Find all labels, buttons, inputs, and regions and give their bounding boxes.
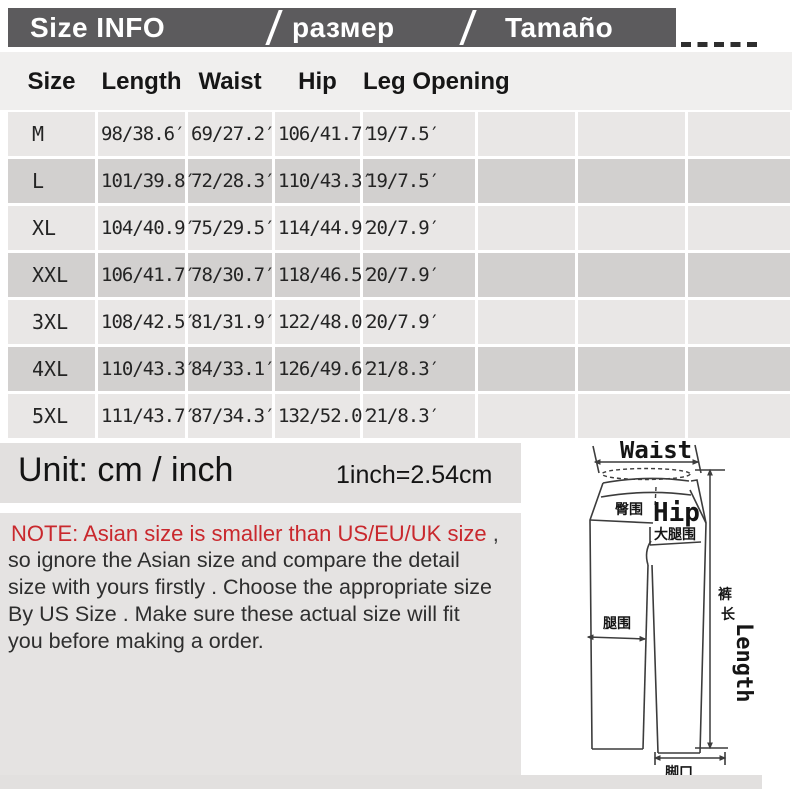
waist-cell: 78/30.7′ — [188, 253, 272, 297]
title-tamano: Tamaño — [505, 12, 613, 44]
waistband-top — [603, 478, 689, 483]
length-cn-label-1: 裤 — [718, 586, 732, 603]
waist-cell: 75/29.5′ — [188, 206, 272, 250]
table-row-m: M 98/38.6′ 69/27.2′ 106/41.7′ 19/7.5′ — [8, 112, 790, 156]
leg-circumference-arrow — [588, 637, 645, 639]
note-line: size with yours firstly . Choose the app… — [8, 574, 521, 601]
length-cell: 110/43.3′ — [98, 347, 185, 391]
pants-left-inner — [643, 565, 648, 749]
waist-cell: 72/28.3′ — [188, 159, 272, 203]
empty-cell — [478, 300, 575, 344]
empty-cell — [478, 159, 575, 203]
unit-band: Unit: cm / inch 1inch=2.54cm — [0, 443, 521, 503]
empty-cell — [578, 253, 685, 297]
inch-conversion: 1inch=2.54cm — [336, 461, 492, 490]
size-cell: XXL — [8, 253, 95, 297]
empty-cell — [478, 394, 575, 438]
length-label: Length — [731, 623, 756, 702]
empty-cell — [688, 394, 790, 438]
empty-cell — [478, 206, 575, 250]
hip-cn-label: 臀围 — [615, 502, 643, 518]
leg-opening-cell: 20/7.9′ — [363, 300, 475, 344]
note-panel: NOTE: Asian size is smaller than US/EU/U… — [0, 513, 521, 775]
thigh-cn-label: 大腿围 — [654, 526, 696, 543]
leg-opening-cell: 20/7.9′ — [363, 206, 475, 250]
empty-cell — [688, 159, 790, 203]
pants-diagram-svg: Waist 臀围 Hip 大腿围 腿围 脚口 裤 长 Length — [525, 441, 789, 775]
waist-tick-left — [593, 446, 599, 473]
size-cell: XL — [8, 206, 95, 250]
hip-cell: 110/43.3′ — [275, 159, 360, 203]
col-header-hip: Hip — [275, 68, 360, 96]
waist-label: Waist — [620, 441, 692, 464]
size-table-header: Size Length Waist Hip Leg Opening — [0, 52, 792, 110]
empty-cell — [578, 394, 685, 438]
leg-opening-cell: 19/7.5′ — [363, 159, 475, 203]
length-cell: 106/41.7′ — [98, 253, 185, 297]
table-row-5xl: 5XL 111/43.7′ 87/34.3′ 132/52.0′ 21/8.3′ — [8, 394, 790, 438]
empty-cell — [478, 112, 575, 156]
empty-cell — [578, 206, 685, 250]
hip-cell: 106/41.7′ — [275, 112, 360, 156]
length-cell: 98/38.6′ — [98, 112, 185, 156]
length-cell: 111/43.7′ — [98, 394, 185, 438]
title-razmer: размер — [292, 12, 395, 44]
length-cell: 104/40.9′ — [98, 206, 185, 250]
col-header-empty — [688, 68, 790, 96]
size-cell: M — [8, 112, 95, 156]
length-cell: 101/39.8′ — [98, 159, 185, 203]
leg-opening-cn-label: 脚口 — [665, 765, 693, 775]
empty-cell — [478, 253, 575, 297]
hip-cell: 118/46.5′ — [275, 253, 360, 297]
empty-cell — [478, 347, 575, 391]
table-row-l: L 101/39.8′ 72/28.3′ 110/43.3′ 19/7.5′ — [8, 159, 790, 203]
empty-cell — [688, 347, 790, 391]
table-row-4xl: 4XL 110/43.3′ 84/33.1′ 126/49.6′ 21/8.3′ — [8, 347, 790, 391]
table-row-3xl: 3XL 108/42.5′ 81/31.9′ 122/48.0′ 20/7.9′ — [8, 300, 790, 344]
note-headline-comma: , — [487, 521, 499, 546]
note-line: you before making a order. — [8, 628, 521, 655]
size-info-titlebar: Size INFO размер Tamaño — [8, 8, 676, 47]
hip-cell: 114/44.9′ — [275, 206, 360, 250]
waist-cell: 84/33.1′ — [188, 347, 272, 391]
leg-cn-label: 腿围 — [603, 616, 631, 632]
waist-cell: 87/34.3′ — [188, 394, 272, 438]
leg-opening-cell: 21/8.3′ — [363, 394, 475, 438]
slash-separator-icon — [459, 10, 476, 45]
size-cell: 3XL — [8, 300, 95, 344]
bottom-gray-strip — [0, 775, 762, 789]
table-row-xxl: XXL 106/41.7′ 78/30.7′ 118/46.5′ 20/7.9′ — [8, 253, 790, 297]
col-header-leg-opening: Leg Opening — [363, 68, 475, 96]
leg-opening-cell: 21/8.3′ — [363, 347, 475, 391]
hip-cell: 122/48.0′ — [275, 300, 360, 344]
pants-left-yoke — [590, 520, 653, 523]
size-table: M 98/38.6′ 69/27.2′ 106/41.7′ 19/7.5′ L … — [8, 112, 790, 441]
empty-cell — [578, 347, 685, 391]
empty-cell — [688, 300, 790, 344]
slash-separator-icon — [265, 10, 282, 45]
col-header-length: Length — [98, 68, 185, 96]
empty-cell — [688, 112, 790, 156]
table-row-xl: XL 104/40.9′ 75/29.5′ 114/44.9′ 20/7.9′ — [8, 206, 790, 250]
size-cell: 5XL — [8, 394, 95, 438]
empty-cell — [578, 159, 685, 203]
leg-opening-cell: 19/7.5′ — [363, 112, 475, 156]
col-header-empty — [578, 68, 685, 96]
empty-cell — [578, 300, 685, 344]
waist-cell: 69/27.2′ — [188, 112, 272, 156]
pants-left-outer — [590, 483, 603, 749]
note-line: By US Size . Make sure these actual size… — [8, 601, 521, 628]
col-header-empty — [478, 68, 575, 96]
empty-cell — [578, 112, 685, 156]
waist-tick-right — [695, 445, 701, 473]
pants-right-inner — [652, 565, 658, 753]
pants-measurement-diagram: Waist 臀围 Hip 大腿围 腿围 脚口 裤 长 Length — [525, 441, 789, 775]
leg-opening-cell: 20/7.9′ — [363, 253, 475, 297]
waistband-bottom — [601, 492, 691, 497]
length-cell: 108/42.5′ — [98, 300, 185, 344]
waist-cell: 81/31.9′ — [188, 300, 272, 344]
empty-cell — [688, 206, 790, 250]
empty-cell — [688, 253, 790, 297]
col-header-waist: Waist — [188, 68, 272, 96]
title-size-info: Size INFO — [30, 12, 165, 44]
col-header-size: Size — [8, 68, 95, 96]
hip-cell: 132/52.0′ — [275, 394, 360, 438]
hip-cell: 126/49.6′ — [275, 347, 360, 391]
size-cell: 4XL — [8, 347, 95, 391]
note-headline: NOTE: Asian size is smaller than US/EU/U… — [11, 521, 521, 547]
unit-label: Unit: cm / inch — [18, 451, 233, 490]
dashed-divider — [681, 42, 757, 47]
note-line: so ignore the Asian size and compare the… — [8, 547, 521, 574]
hip-label: Hip — [653, 498, 700, 528]
size-cell: L — [8, 159, 95, 203]
length-cn-label-2: 长 — [721, 606, 736, 623]
